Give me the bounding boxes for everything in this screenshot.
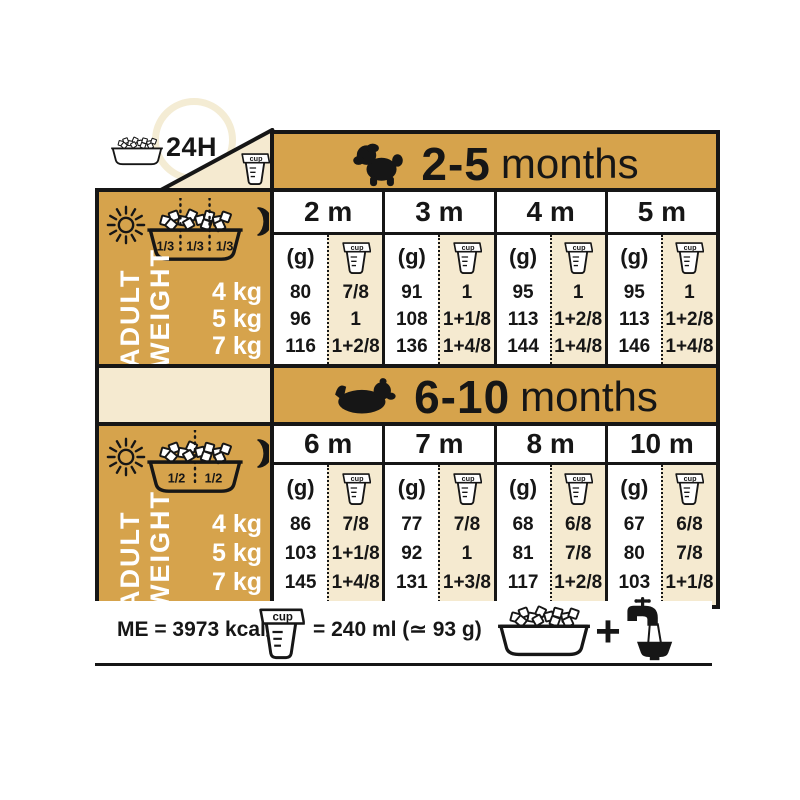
cups-value: 1+3/8 [440,568,493,597]
cups-value: 7/8 [552,539,605,568]
month-column: 2 m (g) 80 96 116 7/8 1 1+2/8 [274,192,382,368]
grams-value: 113 [497,306,550,333]
cup-equivalence: = 240 ml (≃ 93 g) [313,601,482,659]
cups-value: 6/8 [663,510,716,539]
weight-label: 5 kg [212,539,262,568]
grams-value: 91 [385,279,438,306]
month-label: 8 m [497,426,605,465]
grams-value: 92 [385,539,438,568]
section-2-header: 6-10 months [270,364,720,430]
moon-icon [246,438,269,469]
section-1-header: 2-5 months [270,130,720,197]
cups-value: 1 [663,279,716,306]
gap-box [95,364,274,430]
month-label: 7 m [385,426,493,465]
month-column: 10 m (g) 67 80 103 6/8 7/8 1+1/8 [605,426,716,605]
adult-weight-label: ADULT WEIGHT [115,248,175,368]
weight-label: 4 kg [212,510,262,539]
adult-word: ADULT [115,248,145,368]
grams-unit-label: (g) [497,465,550,510]
grams-value: 86 [274,510,327,539]
grams-value: 116 [274,333,327,360]
weight-label: 7 kg [212,333,262,360]
grams-value: 95 [497,279,550,306]
measuring-cup-icon [563,469,593,507]
measuring-cup-icon [674,469,704,507]
adult-word: ADULT [115,490,145,610]
month-label: 3 m [385,192,493,235]
age-range: 6-10 [414,370,510,424]
moon-icon [246,206,269,237]
weight-word: WEIGHT [145,248,175,368]
month-label: 10 m [608,426,716,465]
month-column: 4 m (g) 95 113 144 1 1+2/8 1+4/8 [494,192,605,368]
grams-unit-label: (g) [497,235,550,279]
cups-value: 1+1/8 [440,306,493,333]
cups-value: 1+2/8 [552,306,605,333]
grams-unit-label: (g) [385,235,438,279]
cups-value: 1+2/8 [552,568,605,597]
cups-value: 1+4/8 [552,333,605,360]
footer: ME = 3973 kcal/kg = 240 ml (≃ 93 g) + [95,601,712,666]
month-column: 5 m (g) 95 113 146 1 1+2/8 1+4/8 [605,192,716,368]
measuring-cup-icon [674,238,704,276]
grams-value: 67 [608,510,661,539]
grams-value: 144 [497,333,550,360]
section-2-table: 6 m (g) 86 103 145 7/8 1+1/8 1+4/8 7 m [270,422,720,609]
month-label: 6 m [274,426,382,465]
water-tap-icon [617,597,681,661]
adult-dog-icon [332,376,398,418]
weight-label: 7 kg [212,568,262,597]
grams-value: 136 [385,333,438,360]
grams-unit-label: (g) [608,235,661,279]
month-column: 6 m (g) 86 103 145 7/8 1+1/8 1+4/8 [274,426,382,605]
grams-unit-label: (g) [385,465,438,510]
cups-value: 7/8 [440,510,493,539]
month-column: 8 m (g) 68 81 117 6/8 7/8 1+2/8 [494,426,605,605]
grams-value: 77 [385,510,438,539]
age-range-suffix: months [501,140,639,188]
weight-rows: 4 kg 5 kg 7 kg [212,510,262,597]
grams-value: 68 [497,510,550,539]
kibble-bowl-icon [491,601,597,661]
cups-value: 1+2/8 [329,333,382,360]
section-1-side-panel: ADULT WEIGHT 4 kg 5 kg 7 kg [95,188,274,372]
measuring-cup-icon [563,238,593,276]
cups-value: 1 [552,279,605,306]
adult-weight-label: ADULT WEIGHT [115,490,175,610]
month-column: 7 m (g) 77 92 131 7/8 1 1+3/8 [382,426,493,605]
grams-unit-label: (g) [608,465,661,510]
grams-value: 146 [608,333,661,360]
age-range: 2-5 [421,137,490,191]
feeding-guide: 24H 2-5 months ADULT WEIGHT 4 kg 5 kg 7 … [0,0,800,800]
measuring-cup-icon [452,238,482,276]
month-column: 3 m (g) 91 108 136 1 1+1/8 1+4/8 [382,192,493,368]
cups-value: 1 [329,306,382,333]
bowl-halves-icon [141,430,249,498]
cups-value: 1+4/8 [329,568,382,597]
cups-value: 1+4/8 [663,333,716,360]
weight-label: 4 kg [212,279,262,306]
section-2-side-panel: ADULT WEIGHT 4 kg 5 kg 7 kg [95,422,274,609]
grams-unit-label: (g) [274,465,327,510]
grams-unit-label: (g) [274,235,327,279]
cups-value: 1+4/8 [440,333,493,360]
grams-value: 80 [274,279,327,306]
cups-value: 7/8 [329,510,382,539]
weight-label: 5 kg [212,306,262,333]
weight-word: WEIGHT [145,490,175,610]
cups-value: 1+2/8 [663,306,716,333]
grams-value: 103 [608,568,661,597]
grams-value: 117 [497,568,550,597]
puppy-icon [351,141,405,187]
month-label: 5 m [608,192,716,235]
grams-value: 108 [385,306,438,333]
grams-value: 131 [385,568,438,597]
measuring-cup-icon [257,603,305,661]
cups-value: 1+1/8 [663,568,716,597]
measuring-cup-icon [341,238,371,276]
weight-rows: 4 kg 5 kg 7 kg [212,279,262,360]
cups-value: 7/8 [663,539,716,568]
cups-value: 7/8 [329,279,382,306]
measuring-cup-icon [240,149,270,187]
age-range-suffix: months [520,373,658,421]
cups-value: 1+1/8 [329,539,382,568]
cups-value: 6/8 [552,510,605,539]
grams-value: 81 [497,539,550,568]
month-label: 2 m [274,192,382,235]
grams-value: 95 [608,279,661,306]
grams-value: 113 [608,306,661,333]
grams-value: 103 [274,539,327,568]
cups-value: 1 [440,279,493,306]
measuring-cup-icon [341,469,371,507]
grams-value: 96 [274,306,327,333]
grams-value: 145 [274,568,327,597]
section-1-table: 2 m (g) 80 96 116 7/8 1 1+2/8 3 m [270,188,720,372]
cups-value: 1 [440,539,493,568]
measuring-cup-icon [452,469,482,507]
grams-value: 80 [608,539,661,568]
month-label: 4 m [497,192,605,235]
